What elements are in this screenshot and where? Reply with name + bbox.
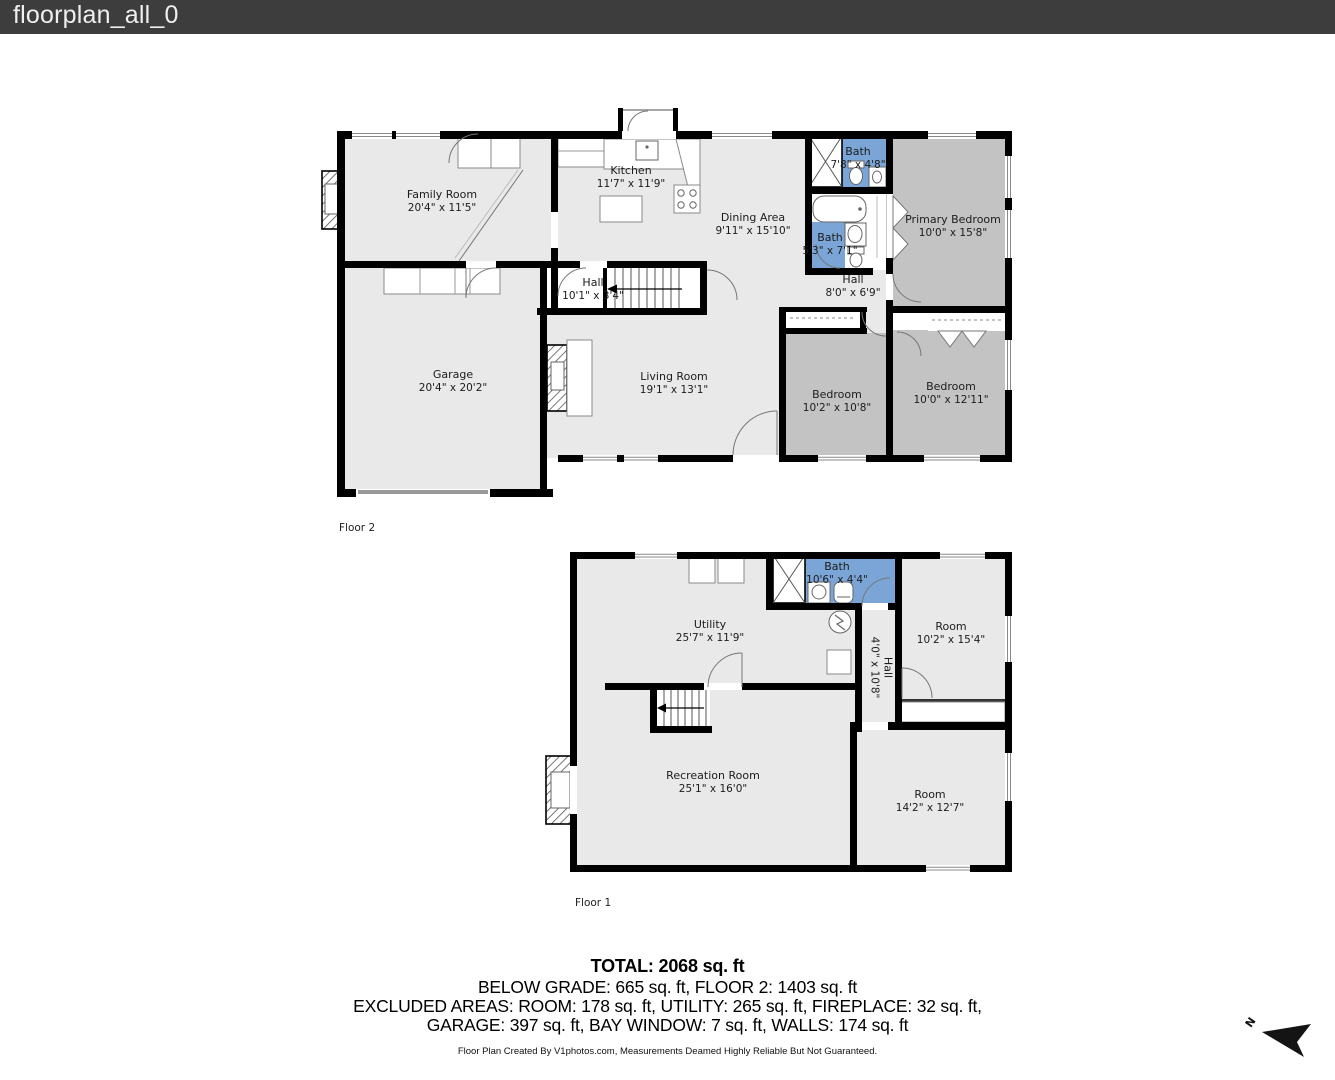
room-label-family-room: Family Room 20'4" x 11'5": [407, 189, 477, 214]
room-label-living-room: Living Room 19'1" x 13'1": [640, 371, 708, 396]
room-label-bedroom-2: Bedroom 10'0" x 12'11": [913, 381, 988, 406]
floor1-caption: Floor 1: [575, 897, 611, 909]
room-label-hall-right: Hall 8'0" x 6'9": [825, 274, 880, 299]
room-label-bedroom-1: Bedroom 10'2" x 10'8": [803, 389, 871, 414]
floorplan-image: [0, 0, 1335, 1080]
summary-total: TOTAL: 2068 sq. ft: [0, 956, 1335, 977]
summary-line-3: GARAGE: 397 sq. ft, BAY WINDOW: 7 sq. ft…: [0, 1015, 1335, 1036]
floor2-caption: Floor 2: [339, 522, 375, 534]
room-label-bath-f1: Bath 10'6" x 4'4": [806, 561, 868, 586]
page: floorplan_all_0: [0, 0, 1335, 1080]
room-label-room-br: Room 14'2" x 12'7": [896, 789, 964, 814]
room-label-hall-small: Hall 10'1" x 3'4": [562, 277, 624, 302]
summary-line-2: EXCLUDED AREAS: ROOM: 178 sq. ft, UTILIT…: [0, 996, 1335, 1017]
floor1-plan: [546, 552, 1013, 872]
room-label-garage: Garage 20'4" x 20'2": [419, 369, 487, 394]
room-label-recreation-room: Recreation Room 25'1" x 16'0": [666, 770, 760, 795]
room-label-hall-f1: Hall 4'0" x 10'8": [869, 637, 894, 699]
room-label-dining-area: Dining Area 9'11" x 15'10": [715, 212, 790, 237]
summary-line-1: BELOW GRADE: 665 sq. ft, FLOOR 2: 1403 s…: [0, 977, 1335, 998]
room-label-primary-bedroom: Primary Bedroom 10'0" x 15'8": [905, 214, 1001, 239]
room-label-utility: Utility 25'7" x 11'9": [676, 619, 744, 644]
floor2-plan: [322, 108, 1013, 497]
room-label-bath-mid: Bath 5'3" x 7'1": [802, 232, 857, 257]
room-label-bath-top: Bath 7'8" x 4'8": [830, 146, 885, 171]
room-label-kitchen: Kitchen 11'7" x 11'9": [597, 165, 665, 190]
room-label-room-tr: Room 10'2" x 15'4": [917, 621, 985, 646]
summary-disclaimer: Floor Plan Created By V1photos.com, Meas…: [0, 1046, 1335, 1057]
